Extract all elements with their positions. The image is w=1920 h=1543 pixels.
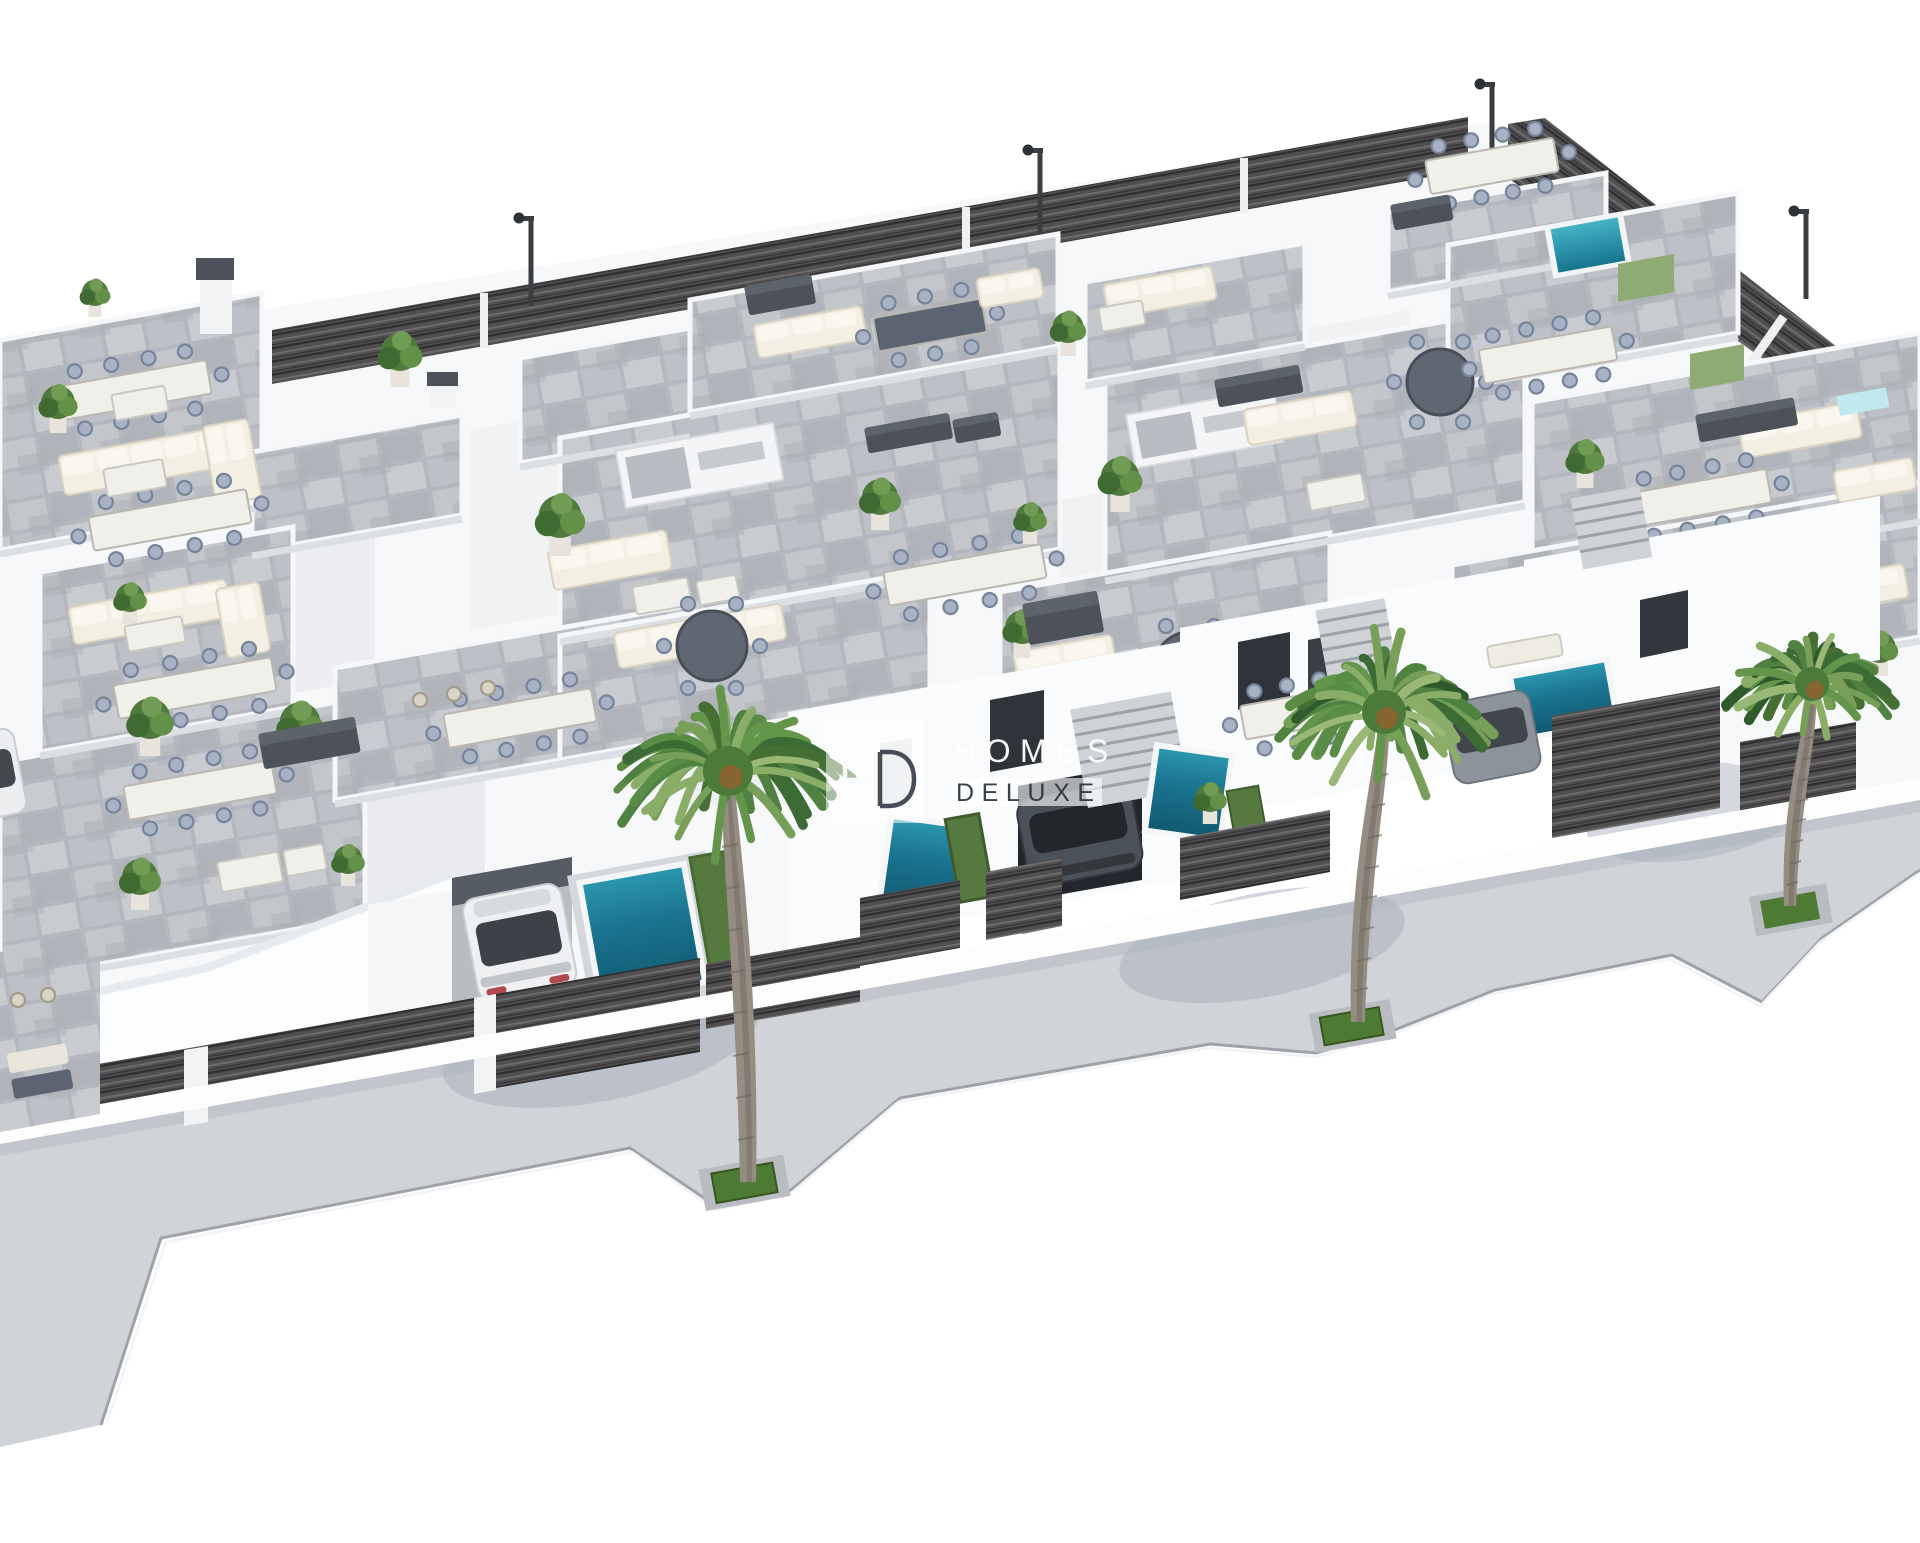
svg-text:HOMES: HOMES: [953, 733, 1118, 769]
svg-text:DELUXE: DELUXE: [956, 779, 1102, 807]
